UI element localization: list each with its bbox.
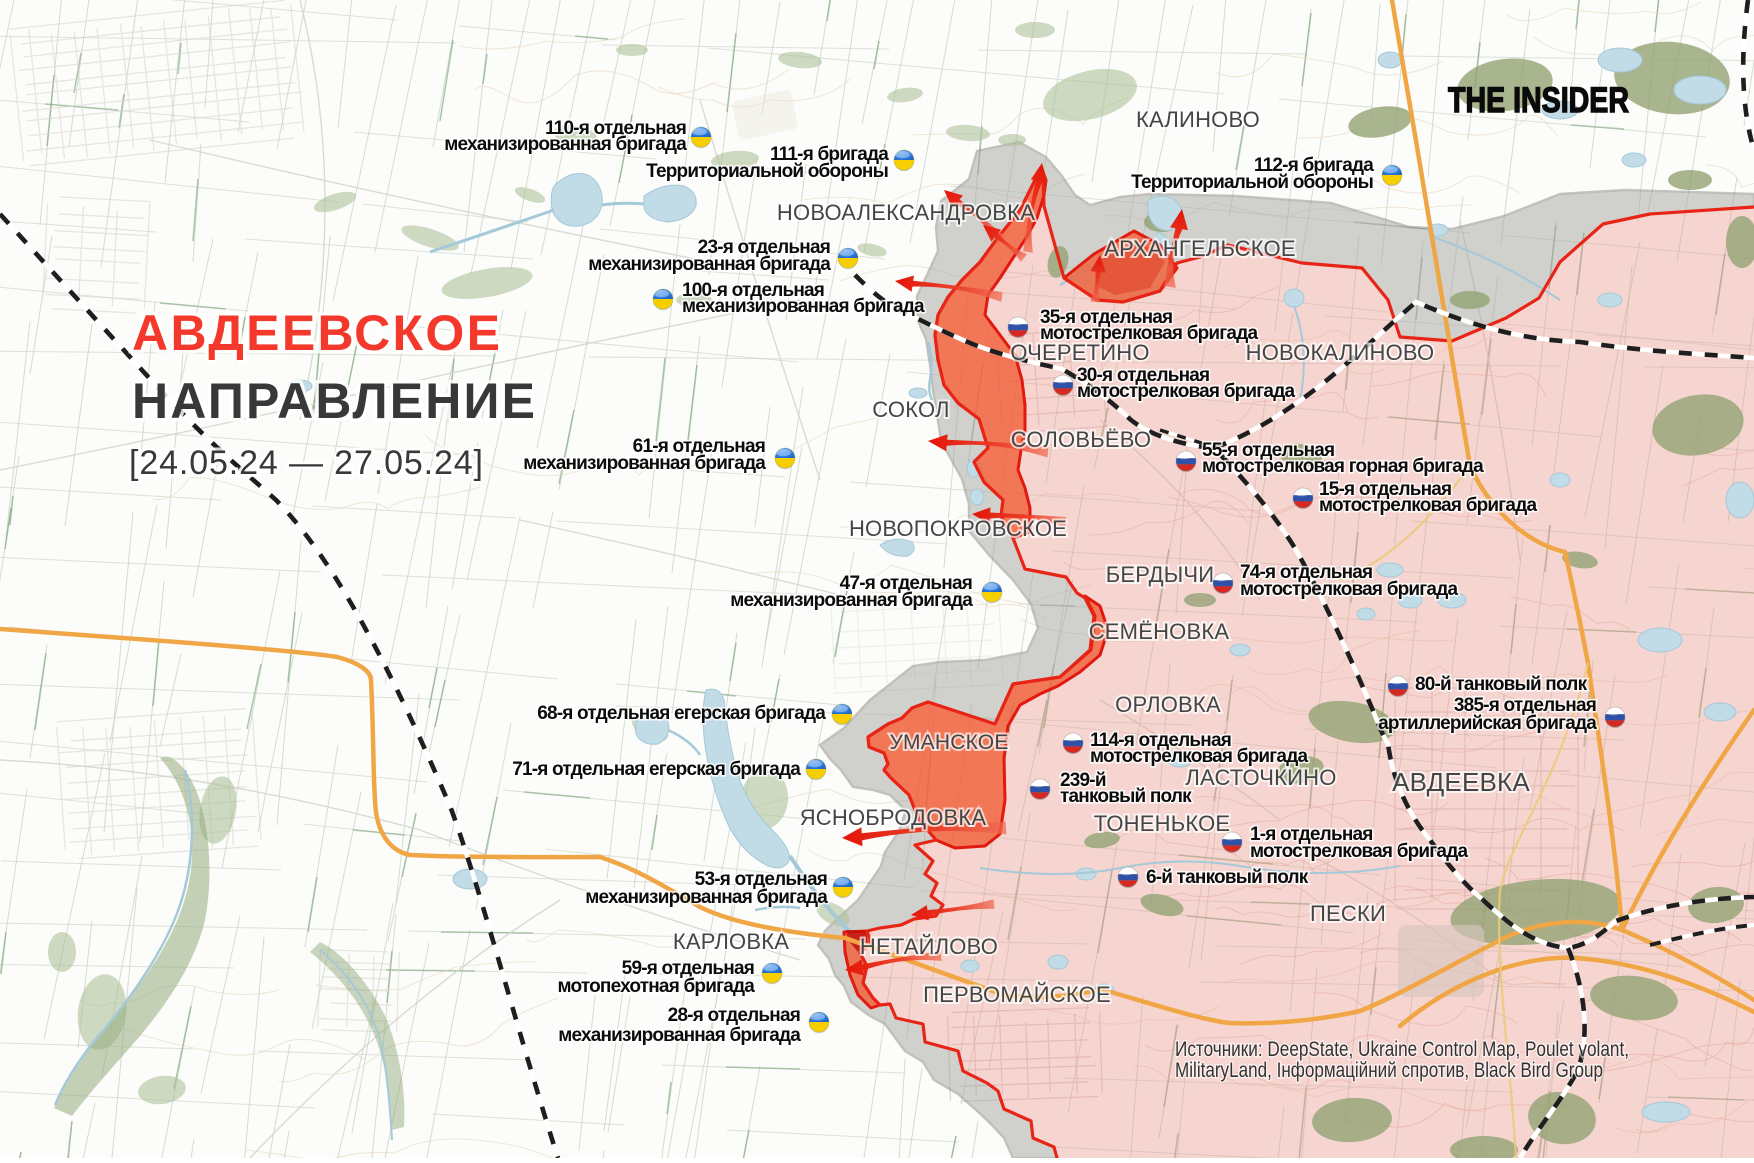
svg-text:механизированная бригада: механизированная бригада [682,296,925,317]
svg-text:ПЕРВОМАЙСКОЕ: ПЕРВОМАЙСКОЕ [923,982,1111,1007]
svg-text:ЯСНОБРОДОВКА: ЯСНОБРОДОВКА [800,805,987,830]
svg-text:ПЕСКИ: ПЕСКИ [1310,901,1386,926]
svg-text:мотострелковая бригада: мотострелковая бригада [1040,323,1258,344]
svg-text:НАПРАВЛЕНИЕ: НАПРАВЛЕНИЕ [132,373,535,429]
svg-text:УМАНСКОЕ: УМАНСКОЕ [889,731,1008,754]
svg-text:НОВОКАЛИНОВО: НОВОКАЛИНОВО [1246,340,1435,365]
svg-text:80-й танковый полк: 80-й танковый полк [1415,674,1588,695]
svg-text:мотострелковая бригада: мотострелковая бригада [1077,381,1295,402]
svg-text:Источники: DeepState, Ukraine: Источники: DeepState, Ukraine Control Ma… [1175,1038,1629,1061]
svg-text:мотострелковая бригада: мотострелковая бригада [1319,495,1537,516]
svg-text:[24.05.24 — 27.05.24]: [24.05.24 — 27.05.24] [129,444,483,482]
svg-text:НОВОАЛЕКСАНДРОВКА: НОВОАЛЕКСАНДРОВКА [777,200,1035,225]
svg-text:механизированная бригада: механизированная бригада [444,134,687,155]
svg-text:6-й танковый полк: 6-й танковый полк [1146,867,1309,888]
svg-text:танковый полк: танковый полк [1060,786,1192,807]
svg-text:СОЛОВЬЁВО: СОЛОВЬЁВО [1011,427,1151,452]
svg-text:MilitaryLand, Інформаційний сп: MilitaryLand, Інформаційний спротив, Bla… [1175,1059,1603,1082]
svg-text:механизированная бригада: механизированная бригада [558,1025,801,1046]
svg-text:мотострелковая бригада: мотострелковая бригада [1240,579,1458,600]
svg-text:мотострелковая бригада: мотострелковая бригада [1250,841,1468,862]
svg-text:ОРЛОВКА: ОРЛОВКА [1115,692,1221,717]
svg-text:ЛАСТОЧКИНО: ЛАСТОЧКИНО [1185,765,1336,790]
svg-text:СОКОЛ: СОКОЛ [872,397,949,422]
svg-text:КАРЛОВКА: КАРЛОВКА [673,929,789,954]
svg-text:НЕТАЙЛОВО: НЕТАЙЛОВО [860,934,998,959]
svg-text:68-я отдельная егерская бригад: 68-я отдельная егерская бригада [537,703,826,724]
svg-text:КАЛИНОВО: КАЛИНОВО [1136,107,1260,132]
svg-text:мотострелковая горная бригада: мотострелковая горная бригада [1202,456,1484,477]
svg-text:НОВОПОКРОВСКОЕ: НОВОПОКРОВСКОЕ [849,516,1067,541]
svg-text:мотострелковая бригада: мотострелковая бригада [1090,746,1308,767]
svg-text:механизированная бригада: механизированная бригада [588,254,831,275]
svg-text:механизированная бригада: механизированная бригада [730,590,973,611]
svg-text:28-я отдельная: 28-я отдельная [668,1005,800,1026]
svg-text:АРХАНГЕЛЬСКОЕ: АРХАНГЕЛЬСКОЕ [1104,236,1295,261]
svg-text:АВДЕЕВКА: АВДЕЕВКА [1392,767,1530,797]
svg-text:THE INSIDER: THE INSIDER [1448,81,1629,120]
svg-text:мотопехотная бригада: мотопехотная бригада [558,976,756,997]
svg-text:механизированная бригада: механизированная бригада [585,887,828,908]
svg-text:Территориальной обороны: Территориальной обороны [646,161,888,182]
svg-text:артиллерийская бригада: артиллерийская бригада [1378,713,1597,734]
svg-text:Территориальной обороны: Территориальной обороны [1131,172,1373,193]
svg-text:71-я отдельная егерская бригад: 71-я отдельная егерская бригада [512,759,801,780]
svg-text:ТОНЕНЬКОЕ: ТОНЕНЬКОЕ [1094,811,1231,836]
svg-text:БЕРДЫЧИ: БЕРДЫЧИ [1106,562,1215,587]
svg-text:СЕМЁНОВКА: СЕМЁНОВКА [1089,619,1230,644]
svg-text:механизированная бригада: механизированная бригада [523,453,766,474]
